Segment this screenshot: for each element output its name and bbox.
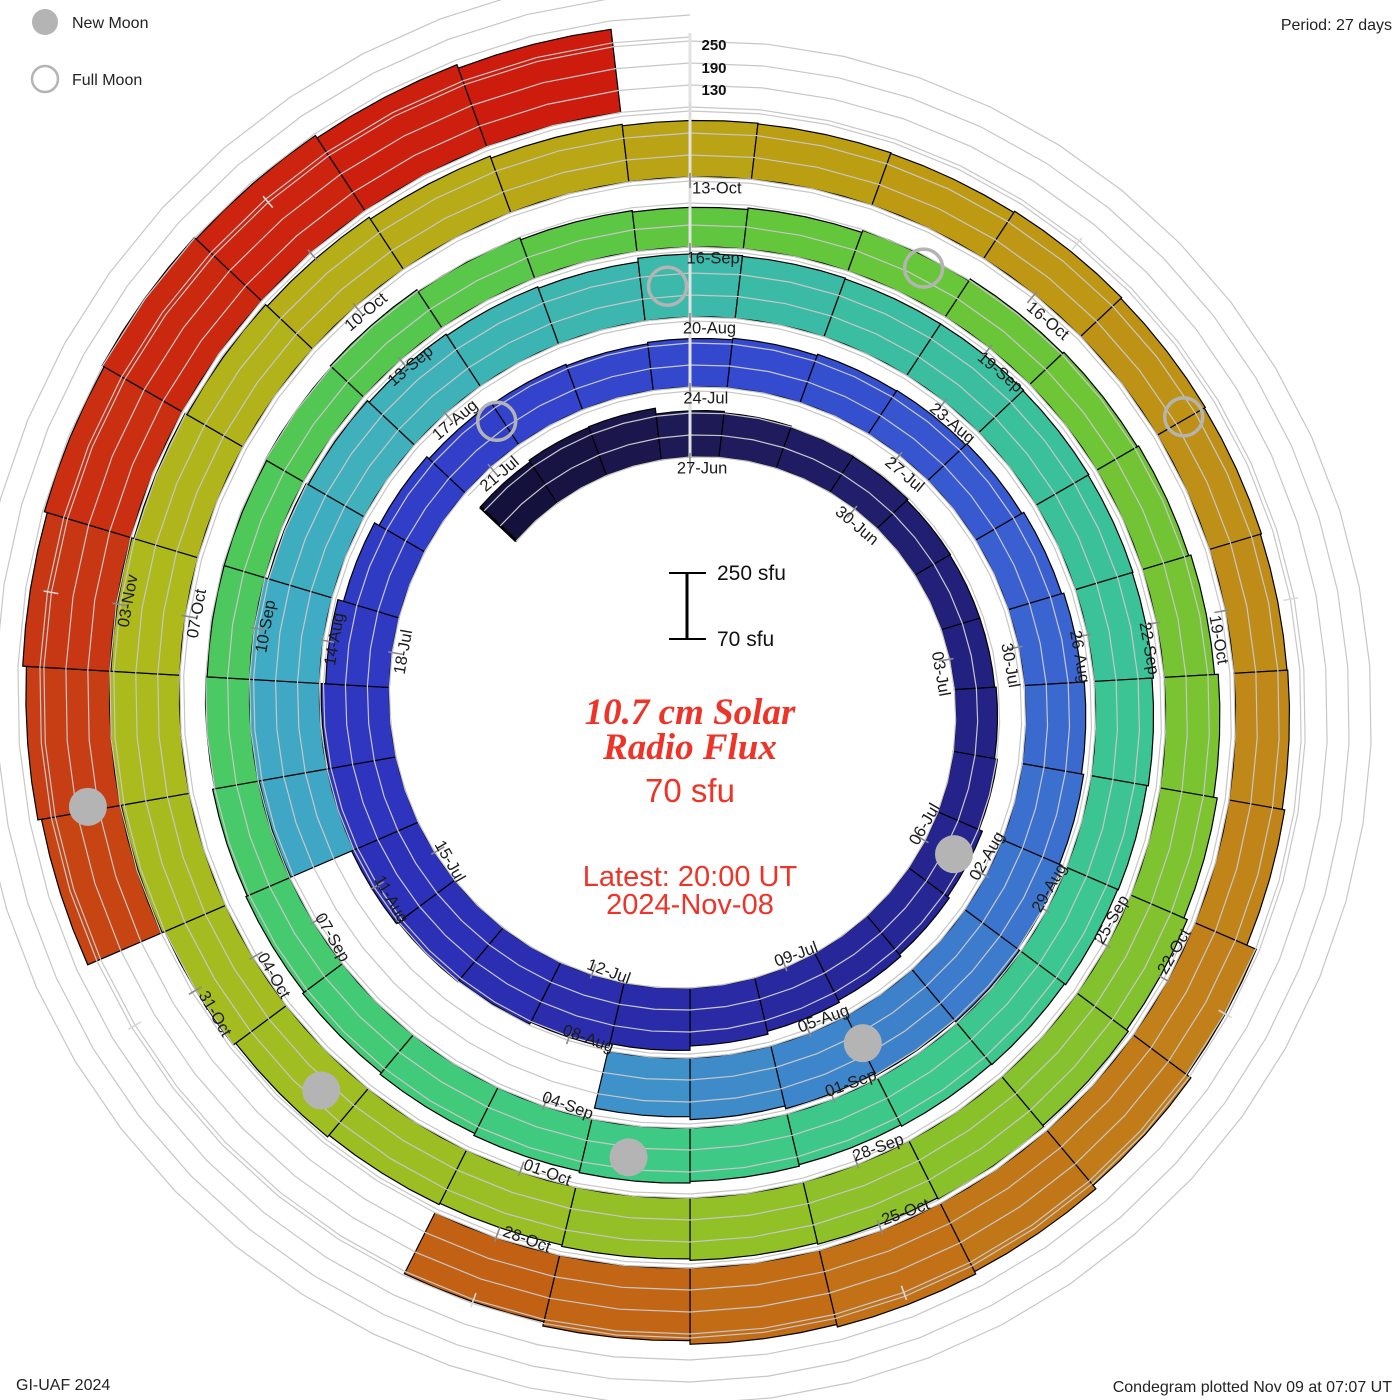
new-moon-marker-01-Nov (69, 788, 107, 826)
date-label-27-Jun: 27-Jun (677, 459, 727, 477)
flux-bar (321, 684, 396, 769)
scale-bar-bottom-label: 70 sfu (717, 628, 774, 651)
flux-bar (543, 1255, 690, 1340)
new-moon-marker-04-Aug (844, 1024, 882, 1062)
credit-left: GI-UAF 2024 (16, 1377, 110, 1394)
condegram-chart: 27-Jun30-Jun03-Jul06-Jul09-Jul12-Jul15-J… (0, 0, 1400, 1400)
flux-scale-bar: 250 sfu 70 sfu (669, 562, 786, 651)
date-label-24-Jul: 24-Jul (683, 389, 728, 407)
full-moon-legend-label: Full Moon (72, 72, 142, 89)
latest-date-label: 2024-Nov-08 (606, 889, 774, 921)
flux-bar (538, 262, 645, 344)
new-moon-marker-03-Sep (610, 1138, 648, 1176)
flux-bar (594, 1051, 690, 1117)
full-moon-legend-icon (32, 66, 58, 92)
chart-title-line2: Radio Flux (602, 727, 777, 768)
new-moon-legend-label: New Moon (72, 15, 148, 32)
date-label-20-Aug: 20-Aug (683, 320, 736, 338)
flux-bar (1229, 670, 1289, 809)
scale-bar-top-label: 250 sfu (717, 562, 786, 585)
date-label-16-Sep: 16-Sep (687, 250, 740, 268)
radial-axis-label-250: 250 (701, 37, 726, 54)
flux-bar (690, 1182, 817, 1260)
radial-axis-label-130: 130 (701, 82, 726, 99)
radial-axis-label-190: 190 (701, 60, 726, 77)
flux-bar (690, 1250, 837, 1344)
flux-bar (690, 978, 768, 1046)
flux-bar (1091, 678, 1153, 786)
new-moon-marker-06-Jul (935, 835, 973, 873)
new-moon-legend-icon (32, 9, 58, 35)
flux-bars-layer (23, 29, 1290, 1344)
flux-bar (567, 344, 654, 410)
date-label-13-Oct: 13-Oct (692, 180, 742, 198)
credit-right: Condegram plotted Nov 09 at 07:07 UT (1113, 1379, 1393, 1396)
period-note: Period: 27 days (1281, 17, 1392, 34)
flux-bar (562, 1187, 690, 1259)
latest-flux-value: 70 sfu (645, 772, 735, 809)
condegram-page: 27-Jun30-Jun03-Jul06-Jul09-Jul12-Jul15-J… (0, 0, 1400, 1400)
flux-bar (1160, 674, 1220, 797)
flux-bar (1022, 682, 1085, 774)
new-moon-marker-02-Oct (302, 1071, 340, 1109)
flux-bar (690, 1114, 799, 1181)
